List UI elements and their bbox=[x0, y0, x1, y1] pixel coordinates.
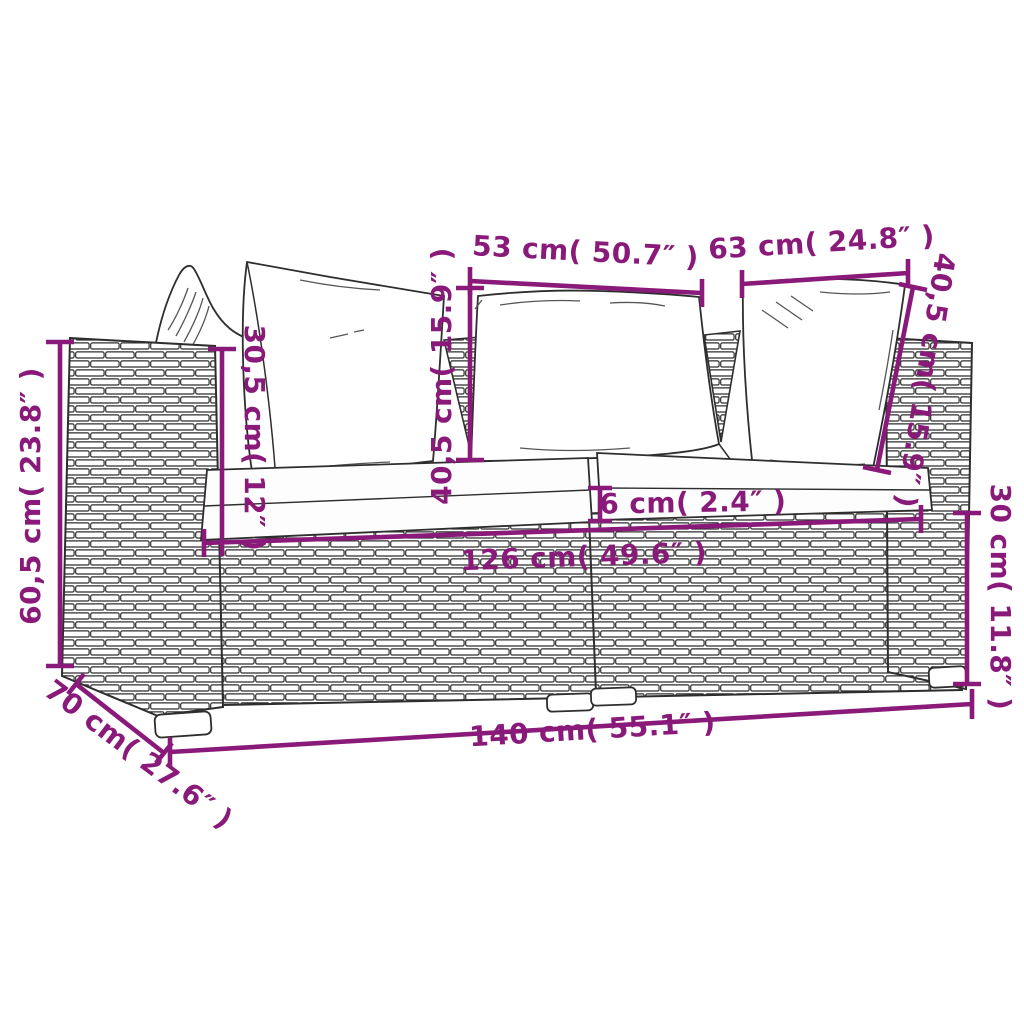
dim-base-height-label: 30 cm( 11.8″ ) bbox=[984, 484, 1017, 711]
middle-back-pillow bbox=[462, 291, 730, 474]
foot-left bbox=[154, 711, 211, 738]
dim-overall-height-label: 60,5 cm( 23.8″ ) bbox=[14, 367, 47, 625]
dim-back-width-left-label: 53 cm( 50.7″ ) bbox=[471, 229, 699, 274]
middle-back-pillow-body bbox=[471, 291, 719, 461]
dim-seat-cushion-thickness: 6 cm( 2.4″ ) bbox=[588, 484, 787, 521]
dim-back-cushion-height-center-label: 40,5 cm( 15.9″ ) bbox=[425, 247, 458, 505]
dimension-diagram: 60,5 cm( 23.8″ ) 30,5 cm( 12″ ) 40,5 cm(… bbox=[0, 0, 1024, 1024]
dim-armrest-above-seat-label: 30,5 cm( 12″ ) bbox=[238, 325, 271, 552]
foot-mid-left bbox=[547, 693, 594, 712]
left-armrest bbox=[62, 338, 223, 716]
foot-mid-right bbox=[591, 687, 637, 706]
sofa-dimension-drawing: 60,5 cm( 23.8″ ) 30,5 cm( 12″ ) 40,5 cm(… bbox=[0, 0, 1024, 1024]
dim-overall-width-label: 140 cm( 55.1″ ) bbox=[468, 706, 716, 754]
left-back-pillow bbox=[243, 262, 444, 484]
sofa-illustration bbox=[62, 262, 972, 738]
dim-seat-cushion-thickness-label: 6 cm( 2.4″ ) bbox=[599, 484, 787, 520]
dim-back-width-right-label: 63 cm( 24.8″ ) bbox=[707, 219, 935, 266]
